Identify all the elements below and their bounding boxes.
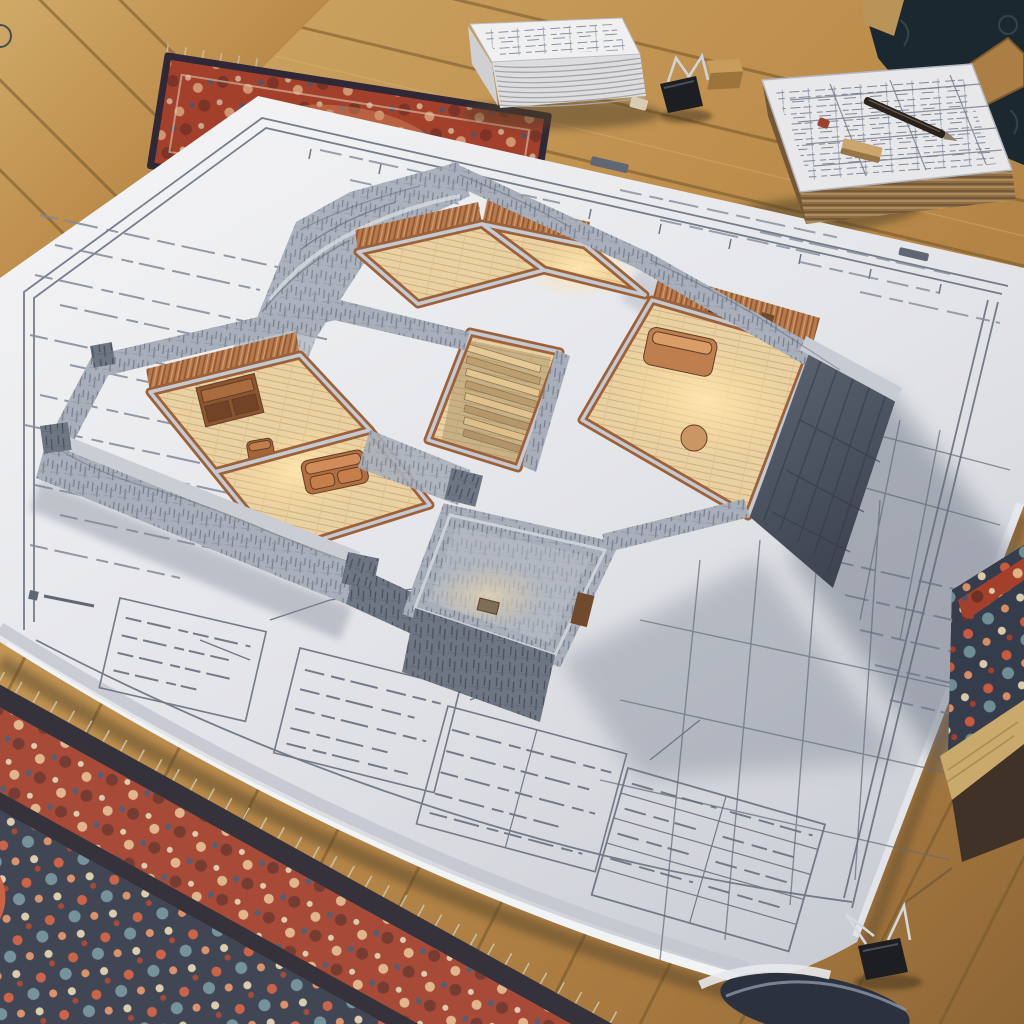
scene-canvas — [0, 0, 1024, 1024]
photo-architectural-blueprint-scene — [0, 0, 1024, 1024]
sheen-overlay — [0, 0, 1024, 1024]
